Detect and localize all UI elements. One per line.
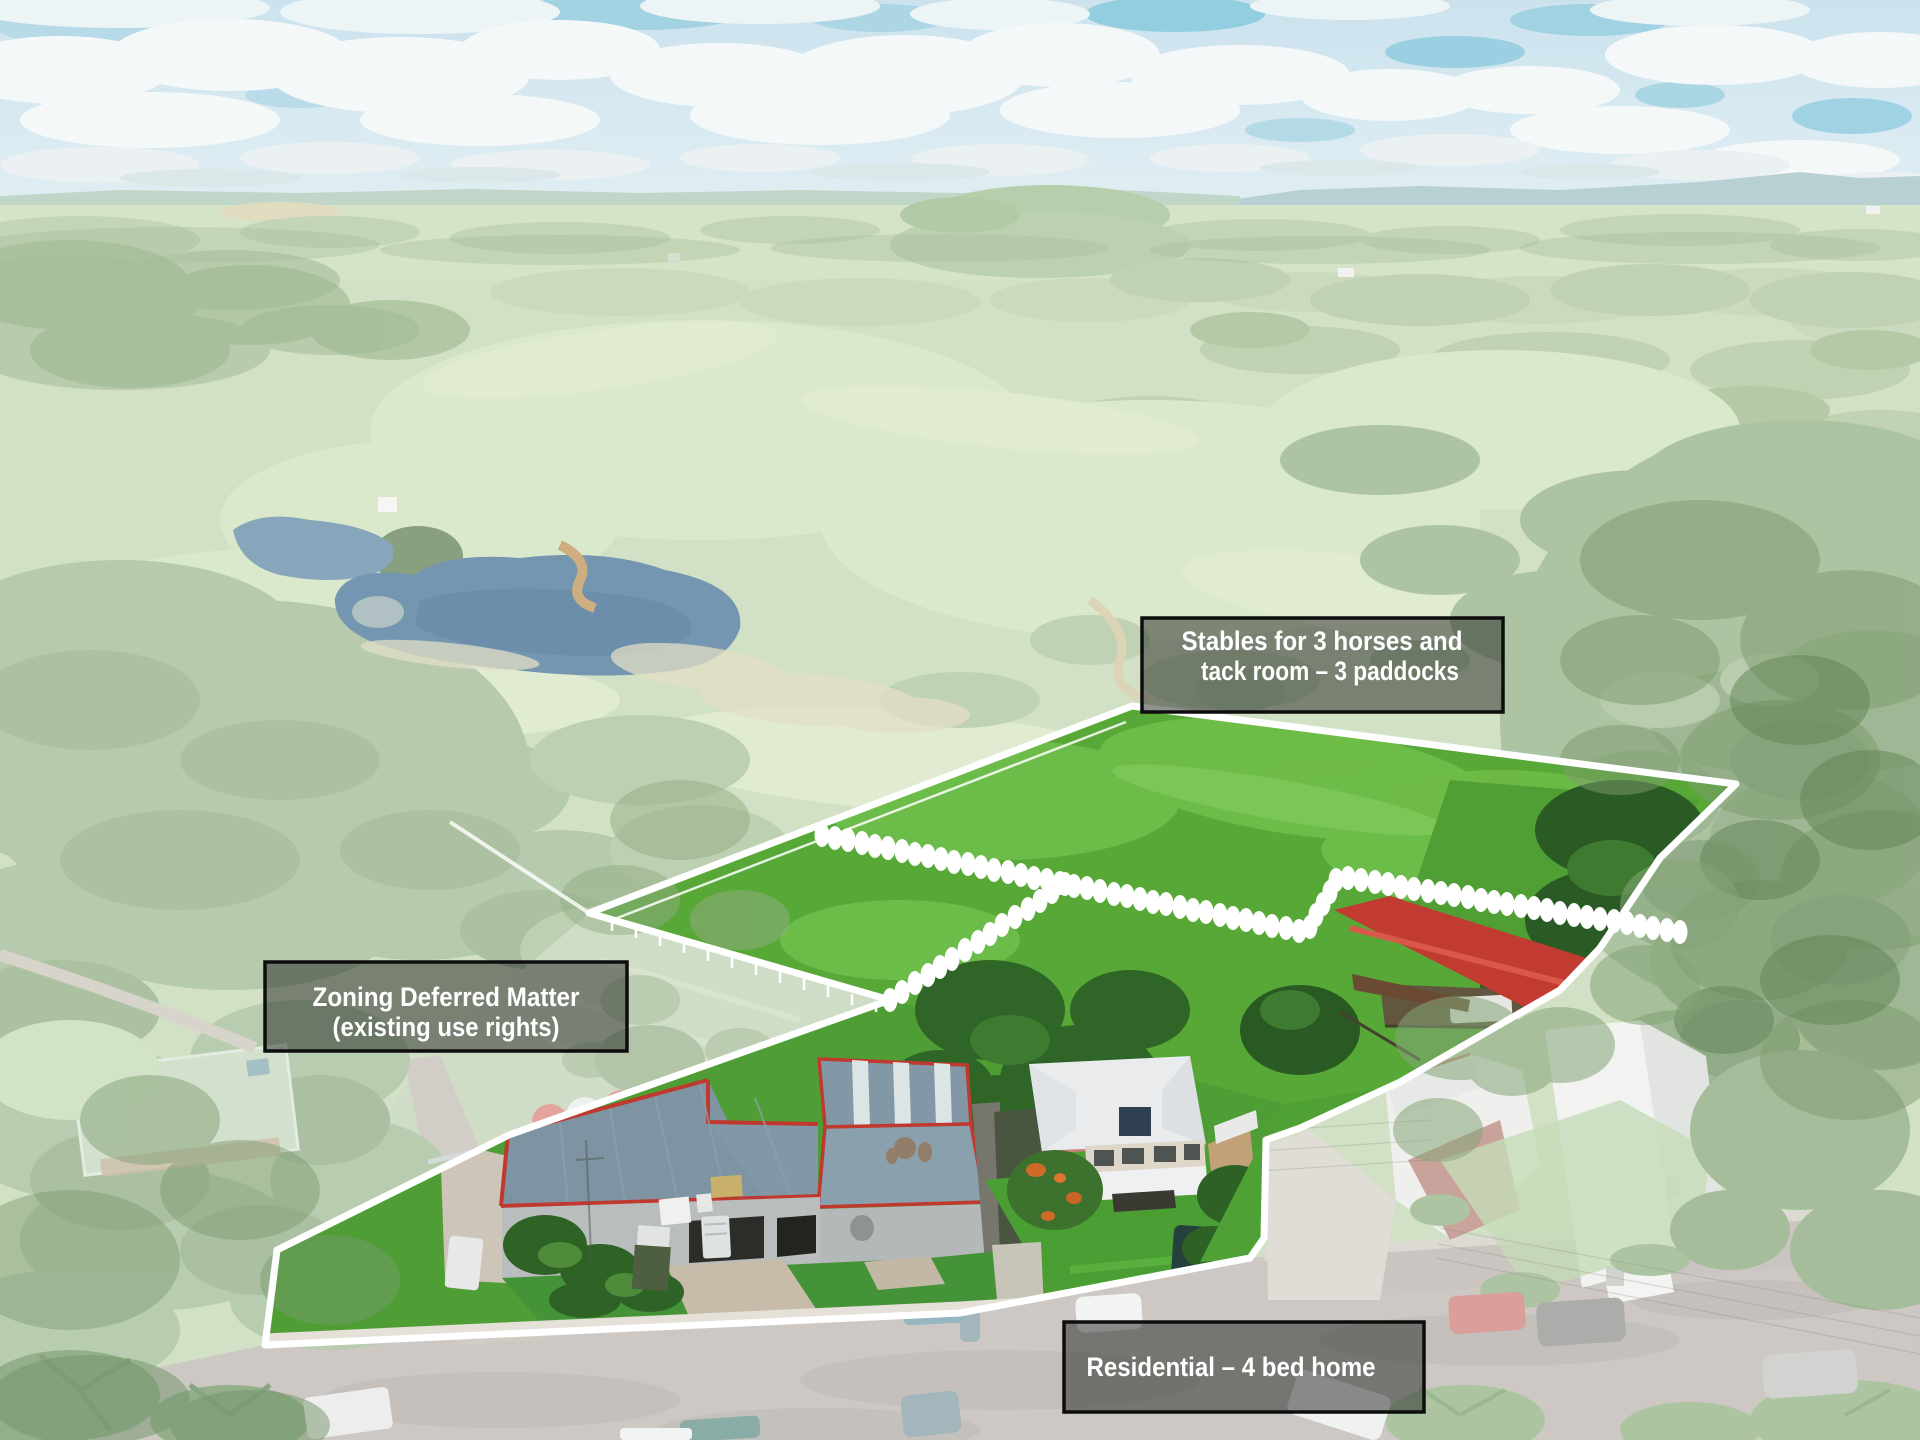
svg-text:tack room – 3 paddocks: tack room – 3 paddocks <box>1201 656 1459 686</box>
svg-text:Zoning Deferred Matter: Zoning Deferred Matter <box>313 982 580 1012</box>
svg-text:Stables for 3 horses and: Stables for 3 horses and <box>1182 626 1463 656</box>
svg-text:(existing use rights): (existing use rights) <box>333 1012 560 1042</box>
svg-text:Residential – 4 bed home: Residential – 4 bed home <box>1087 1352 1376 1382</box>
